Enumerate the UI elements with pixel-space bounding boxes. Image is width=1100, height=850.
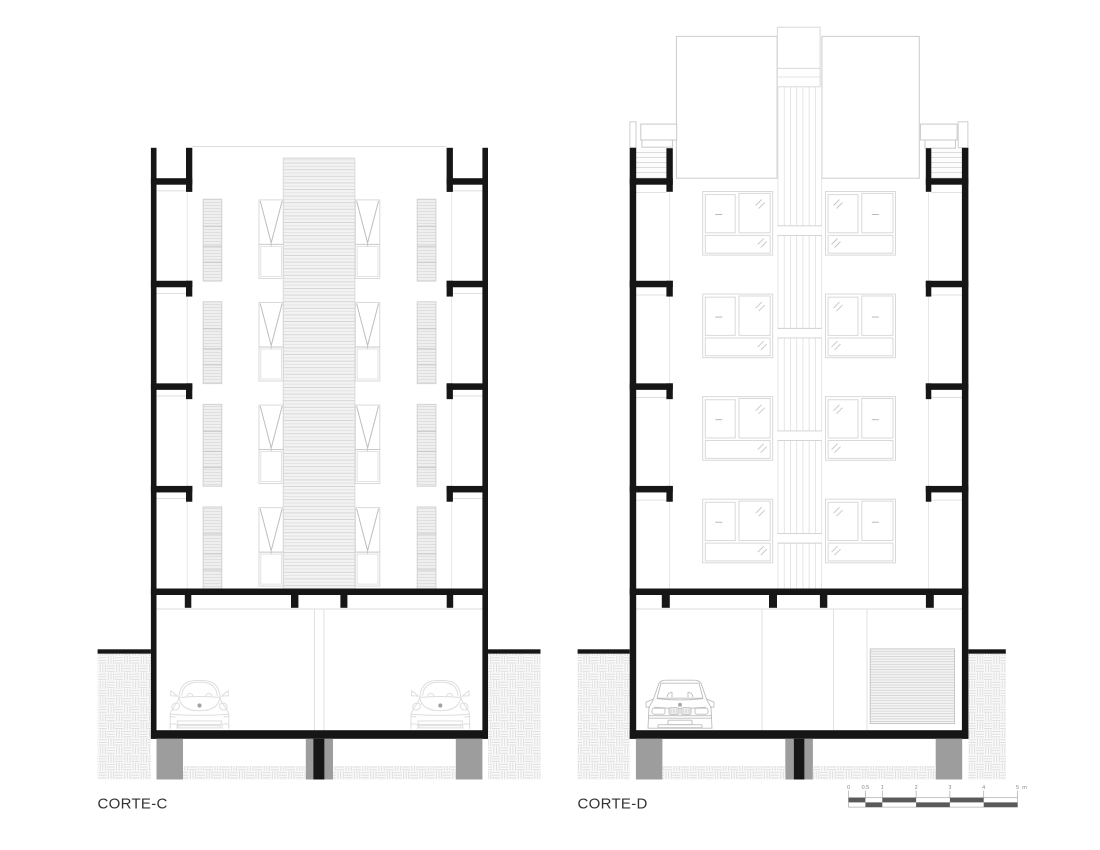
svg-text:m: m	[1022, 785, 1027, 791]
svg-text:CORTE-C: CORTE-C	[98, 796, 168, 813]
svg-text:0.5: 0.5	[862, 785, 870, 791]
svg-text:2: 2	[915, 785, 918, 791]
svg-text:CORTE-D: CORTE-D	[578, 796, 648, 813]
svg-text:3: 3	[948, 785, 951, 791]
svg-text:0: 0	[847, 785, 850, 791]
svg-text:4: 4	[982, 785, 985, 791]
svg-text:1: 1	[881, 785, 884, 791]
svg-text:5: 5	[1016, 785, 1019, 791]
